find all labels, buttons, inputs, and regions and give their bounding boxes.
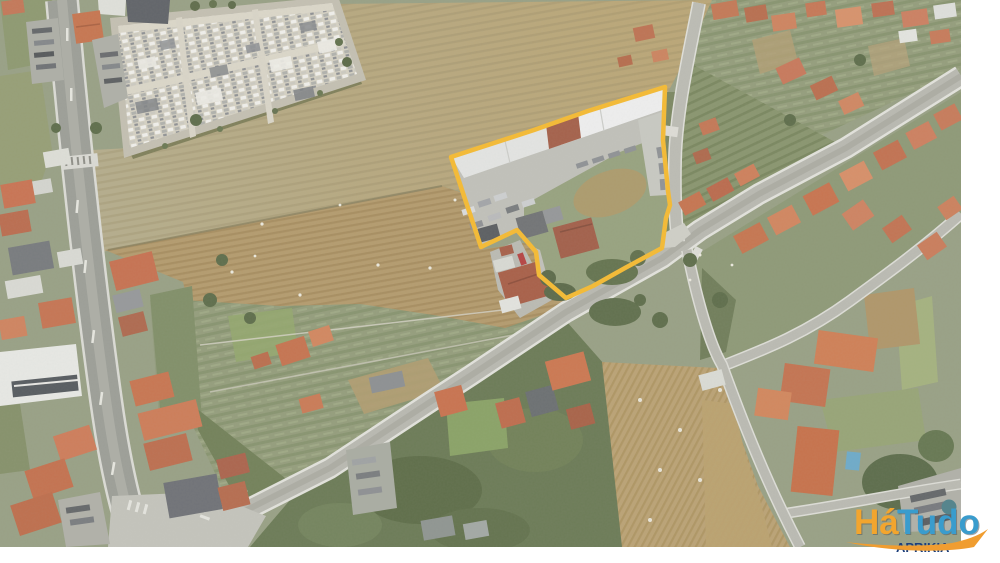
svg-text:Tudo: Tudo	[897, 503, 980, 542]
svg-text:Há: Há	[854, 503, 899, 542]
